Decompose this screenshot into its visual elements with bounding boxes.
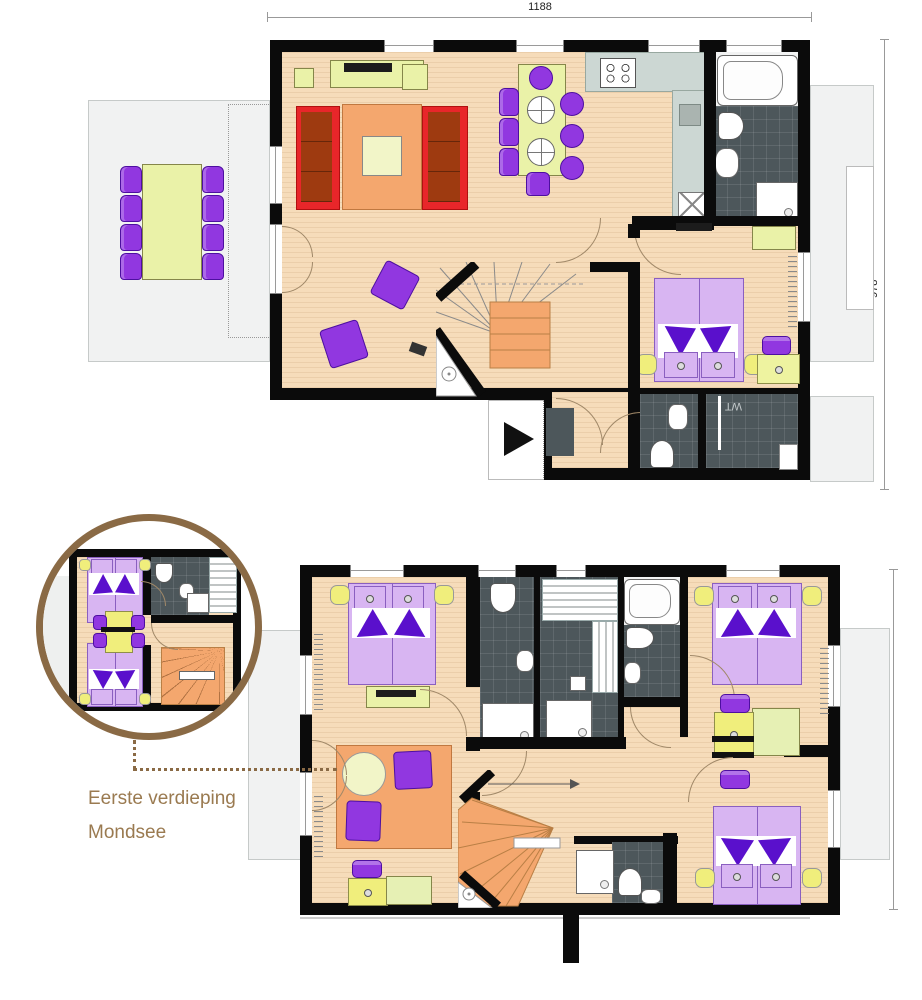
- pillow: [757, 586, 791, 610]
- pillow: [392, 586, 424, 610]
- desk-chair-icon: [131, 633, 145, 648]
- stool-icon: [695, 868, 715, 888]
- interior-wall: [480, 737, 626, 749]
- interior-wall: [466, 577, 480, 687]
- desk-icon: [348, 878, 388, 906]
- wall-stub: [563, 915, 579, 963]
- interior-wall: [466, 737, 480, 751]
- interior-wall: [534, 577, 540, 745]
- sauna-bench: [542, 579, 618, 621]
- window-icon: [556, 565, 586, 577]
- window-icon: [726, 565, 780, 577]
- wall-stub: [712, 736, 754, 742]
- desk-icon: [386, 876, 432, 905]
- sink-icon: [570, 676, 586, 691]
- toilet-icon: [490, 583, 516, 613]
- radiator-icon: [314, 634, 323, 714]
- pillow: [718, 586, 752, 610]
- tv-icon: [376, 690, 416, 697]
- first-floor-plan: 778: [0, 0, 922, 1000]
- stool-icon: [139, 693, 151, 705]
- stool-icon: [802, 586, 822, 606]
- toilet-icon: [155, 563, 173, 583]
- bathtub-basin: [629, 584, 671, 618]
- desk-chair-icon: [720, 694, 750, 713]
- inset-connector-vertical: [133, 740, 136, 770]
- inset-sauna-bench: [209, 557, 237, 613]
- floorplan-canvas: 1188 978: [0, 0, 922, 1000]
- sink-icon: [516, 650, 534, 672]
- caption-floor-name: Eerste verdieping: [88, 788, 236, 810]
- stool-icon: [802, 868, 822, 888]
- interior-wall: [622, 697, 688, 707]
- shower-icon: [546, 700, 592, 742]
- interior-wall: [680, 697, 688, 737]
- pillow: [354, 586, 386, 610]
- desk-icon: [714, 712, 754, 754]
- stool-icon: [79, 693, 91, 705]
- pillow: [721, 864, 753, 888]
- stool-icon: [694, 586, 714, 606]
- window-icon: [478, 565, 516, 577]
- roof-terrace-left: [248, 630, 302, 860]
- inset-wall: [151, 615, 241, 623]
- dimension-tick: [889, 909, 898, 910]
- window-icon: [350, 565, 404, 577]
- sink-icon: [624, 662, 641, 684]
- roof-terrace-right: [840, 628, 890, 860]
- stool-icon: [330, 585, 350, 605]
- pillow: [91, 689, 113, 705]
- stool-icon: [139, 559, 151, 571]
- desk-icon: [105, 611, 133, 653]
- desk-chair-icon: [352, 860, 382, 878]
- shower-icon: [187, 593, 209, 613]
- dimension-tick: [889, 569, 898, 570]
- window-icon: [300, 655, 312, 715]
- ground-floor-outline: [300, 917, 810, 919]
- stool-icon: [434, 585, 454, 605]
- window-icon: [828, 790, 840, 848]
- toilet-icon: [618, 868, 642, 896]
- wall-stub: [101, 627, 135, 632]
- interior-wall: [680, 577, 688, 697]
- stool-icon: [79, 559, 91, 571]
- dimension-line-right: [893, 570, 894, 910]
- desk-icon: [752, 708, 800, 756]
- sauna-bench: [592, 621, 618, 693]
- round-table-icon: [342, 752, 386, 796]
- radiator-icon: [820, 648, 829, 718]
- pillow: [115, 689, 137, 705]
- interior-wall: [618, 577, 624, 745]
- toilet-icon: [626, 627, 654, 649]
- sink-icon: [641, 889, 661, 904]
- window-icon: [828, 645, 840, 707]
- armchair-icon: [345, 800, 381, 841]
- desk-chair-icon: [93, 633, 107, 648]
- detail-inset-circle: [36, 514, 262, 740]
- armchair-icon: [393, 750, 433, 790]
- stair-landing: [179, 671, 215, 680]
- patio-door-icon: [300, 772, 312, 836]
- inset-connector-horizontal: [133, 768, 337, 771]
- caption-house-name: Mondsee: [88, 822, 166, 844]
- staircase-icon: [458, 770, 608, 908]
- pillow: [760, 864, 792, 888]
- wall-stub: [712, 752, 754, 758]
